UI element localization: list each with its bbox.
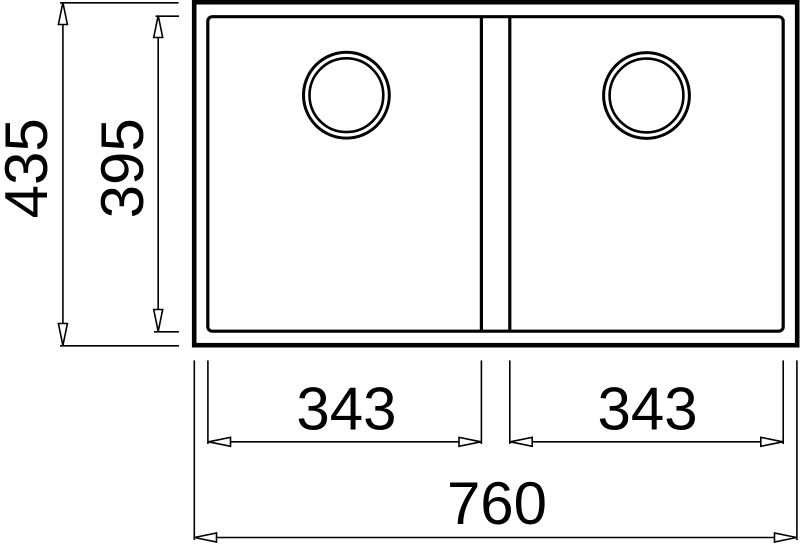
svg-text:435: 435 [0,118,60,218]
svg-text:343: 343 [296,376,396,443]
svg-text:343: 343 [598,376,698,443]
svg-text:395: 395 [89,118,156,218]
svg-text:760: 760 [447,470,547,537]
